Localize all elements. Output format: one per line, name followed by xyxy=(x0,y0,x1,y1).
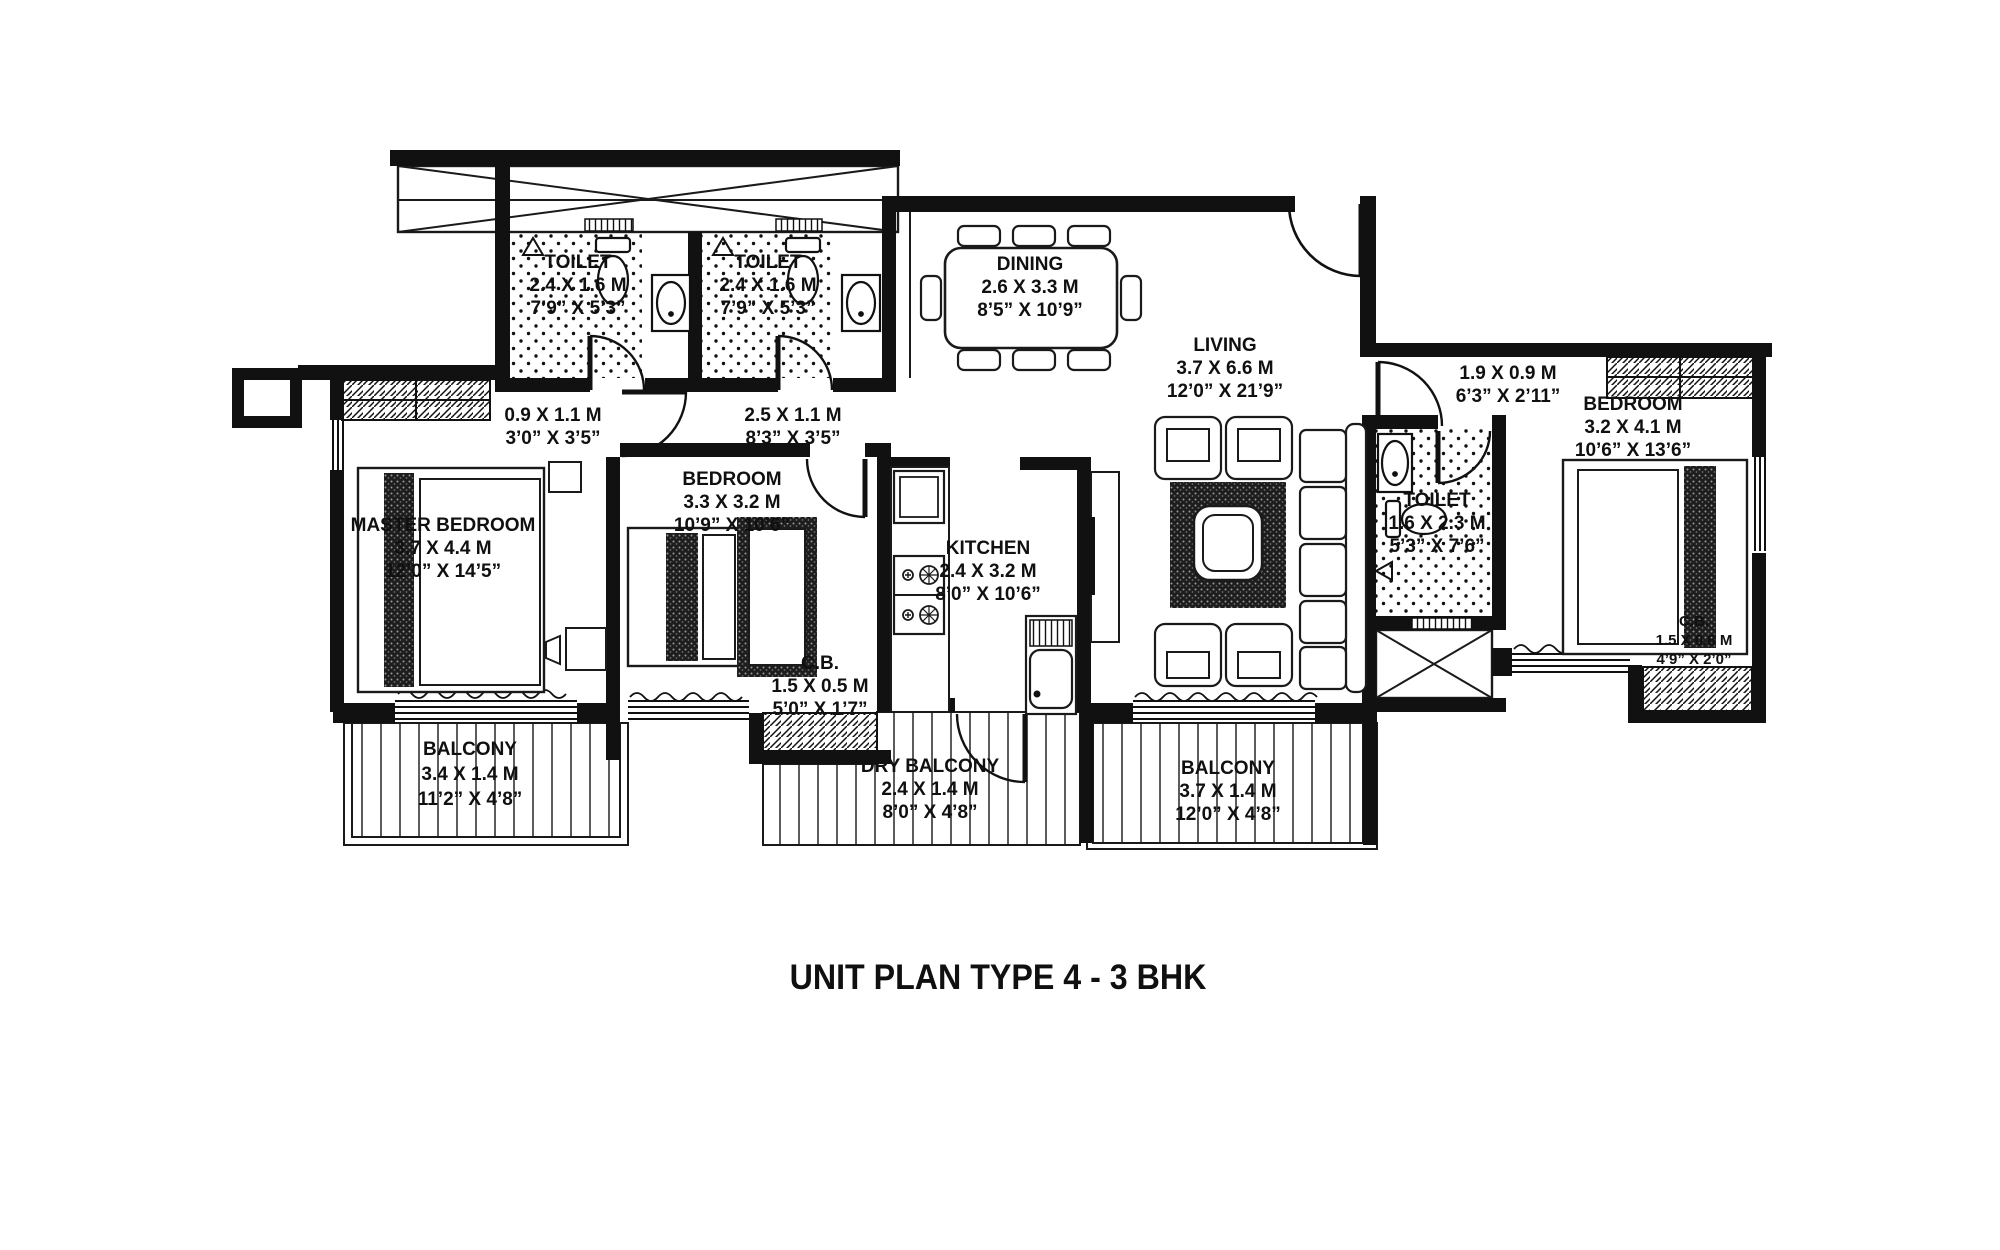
plan-title: UNIT PLAN TYPE 4 - 3 BHK xyxy=(790,958,1207,998)
room-name: BEDROOM xyxy=(674,468,790,491)
room-dim-imperial: 12’0” X 21’9” xyxy=(1167,380,1283,403)
room-dim-imperial: 8’0” X 4’8” xyxy=(861,801,999,824)
window-bedroom3-right xyxy=(1755,457,1765,551)
room-label-cb-2: C.B. 1.5 X 0.6 M 4’9” X 2’0” xyxy=(1656,612,1733,669)
room-dim-metric: 3.7 X 1.4 M xyxy=(1175,780,1281,803)
room-dim-imperial: 10’9” X 10’6” xyxy=(674,514,790,537)
room-dim-imperial: 7’9” X 5’3” xyxy=(529,297,626,320)
room-label-bedroom-2: BEDROOM 3.3 X 3.2 M 10’9” X 10’6” xyxy=(674,468,790,537)
room-name: LIVING xyxy=(1167,334,1283,357)
tv-unit xyxy=(1087,472,1119,642)
master-desk xyxy=(546,628,606,670)
room-label-living: LIVING 3.7 X 6.6 M 12’0” X 21’9” xyxy=(1167,334,1283,403)
armchair-2 xyxy=(1226,417,1292,479)
bedroom2-bed xyxy=(628,528,740,666)
top-duct-shaft xyxy=(398,166,898,232)
room-label-bedroom-3: BEDROOM 3.2 X 4.1 M 10’6” X 13’6” xyxy=(1575,393,1691,462)
sliding-window-bedroom2 xyxy=(628,701,749,719)
room-name: C.B. xyxy=(771,652,868,675)
sofa xyxy=(1300,424,1366,692)
room-name: TOILET xyxy=(1388,489,1485,512)
sliding-window-bedroom3 xyxy=(1512,654,1630,672)
room-label-dining: DINING 2.6 X 3.3 M 8’5” X 10’9” xyxy=(977,253,1083,322)
room-dim-imperial: 12’0” X 4’8” xyxy=(1175,803,1281,826)
room-dim-metric: 2.4 X 1.6 M xyxy=(529,274,626,297)
vent-grille-toilet1 xyxy=(585,219,633,231)
room-label-balcony-2: BALCONY 3.7 X 1.4 M 12’0” X 4’8” xyxy=(1175,757,1281,826)
room-dim-metric: 2.5 X 1.1 M xyxy=(744,404,841,427)
room-dim-metric: 1.9 X 0.9 M xyxy=(1456,362,1561,385)
washbasin-icon-toilet3 xyxy=(1378,434,1412,492)
room-dim-metric: 3.2 X 4.1 M xyxy=(1575,416,1691,439)
room-label-toilet-1: TOILET 2.4 X 1.6 M 7’9” X 5’3” xyxy=(529,251,626,320)
room-dim-metric: 2.4 X 1.6 M xyxy=(719,274,816,297)
room-name: BALCONY xyxy=(1175,757,1281,780)
room-name: DINING xyxy=(977,253,1083,276)
room-label-balcony-1: BALCONY 3.4 X 1.4 M 11’2” X 4’8” xyxy=(418,737,523,812)
room-dim-imperial: 3’0” X 3’5” xyxy=(504,427,601,450)
master-wardrobe xyxy=(342,380,490,420)
room-name: KITCHEN xyxy=(935,537,1041,560)
room-name: BEDROOM xyxy=(1575,393,1691,416)
room-dim-imperial: 8’0” X 10’6” xyxy=(935,583,1041,606)
armchair-3 xyxy=(1155,624,1221,686)
room-dim-imperial: 5’3” X 7’6” xyxy=(1388,535,1485,558)
sink xyxy=(1026,616,1076,714)
room-dim-metric: 3.7 X 4.4 M xyxy=(351,537,536,560)
room-dim-metric: 3.3 X 3.2 M xyxy=(674,491,790,514)
room-dim-metric: 2.4 X 3.2 M xyxy=(935,560,1041,583)
room-label-kitchen: KITCHEN 2.4 X 3.2 M 8’0” X 10’6” xyxy=(935,537,1041,606)
room-dim-metric: 0.9 X 1.1 M xyxy=(504,404,601,427)
armchair-1 xyxy=(1155,417,1221,479)
sliding-window-living xyxy=(1133,701,1315,719)
room-dim-metric: 1.6 X 2.3 M xyxy=(1388,512,1485,535)
room-dim-imperial: 8’3” X 3’5” xyxy=(744,427,841,450)
room-name: DRY BALCONY xyxy=(861,755,999,778)
room-dim-imperial: 7’9” X 5’3” xyxy=(719,297,816,320)
side-shaft-cross xyxy=(1376,630,1492,698)
room-label-dry-balcony: DRY BALCONY 2.4 X 1.4 M 8’0” X 4’8” xyxy=(861,755,999,824)
washbasin-icon-toilet1 xyxy=(652,275,690,331)
vent-grille-toilet2 xyxy=(776,219,822,231)
room-label-toilet-3: TOILET 1.6 X 2.3 M 5’3” X 7’6” xyxy=(1388,489,1485,558)
room-dim-imperial: 11’2” X 4’8” xyxy=(418,787,523,812)
room-label-entry-passage: 1.9 X 0.9 M 6’3” X 2’11” xyxy=(1456,362,1561,408)
room-dim-imperial: 4’9” X 2’0” xyxy=(1656,650,1733,669)
vent-grille-toilet3 xyxy=(1412,618,1472,629)
room-dim-imperial: 10’6” X 13’6” xyxy=(1575,439,1691,462)
room-dim-metric: 2.4 X 1.4 M xyxy=(861,778,999,801)
fridge xyxy=(894,471,944,523)
left-ledge xyxy=(232,368,302,428)
room-dim-metric: 3.4 X 1.4 M xyxy=(418,762,523,787)
room-label-lobby: 2.5 X 1.1 M 8’3” X 3’5” xyxy=(744,404,841,450)
room-dim-imperial: 5’0” X 1’7” xyxy=(771,698,868,721)
door-entrance xyxy=(1289,204,1361,276)
room-dim-imperial: 6’3” X 2’11” xyxy=(1456,385,1561,408)
window-master-left xyxy=(333,420,343,470)
sliding-window-master xyxy=(395,701,577,719)
room-label-lobby-small: 0.9 X 1.1 M 3’0” X 3’5” xyxy=(504,404,601,450)
floor-plan-page: TOILET 2.4 X 1.6 M 7’9” X 5’3” TOILET 2.… xyxy=(0,0,2000,1250)
room-dim-metric: 1.5 X 0.5 M xyxy=(771,675,868,698)
cupboard-hatch-2 xyxy=(1643,667,1752,711)
room-label-master-bedroom: MASTER BEDROOM 3.7 X 4.4 M 12’0” X 14’5” xyxy=(351,514,536,583)
room-name: TOILET xyxy=(529,251,626,274)
washbasin-icon-toilet2 xyxy=(842,275,880,331)
room-name: TOILET xyxy=(719,251,816,274)
bedroom3-wardrobe xyxy=(1607,357,1753,398)
room-name: BALCONY xyxy=(418,737,523,762)
door-bedroom2 xyxy=(807,459,865,517)
room-dim-imperial: 8’5” X 10’9” xyxy=(977,299,1083,322)
room-name: C.B. xyxy=(1656,612,1733,631)
room-dim-imperial: 12’0” X 14’5” xyxy=(351,560,536,583)
armchair-4 xyxy=(1226,624,1292,686)
room-label-toilet-2: TOILET 2.4 X 1.6 M 7’9” X 5’3” xyxy=(719,251,816,320)
rug-coffee-table xyxy=(1170,482,1286,608)
room-name: MASTER BEDROOM xyxy=(351,514,536,537)
room-dim-metric: 3.7 X 6.6 M xyxy=(1167,357,1283,380)
room-dim-metric: 1.5 X 0.6 M xyxy=(1656,631,1733,650)
room-dim-metric: 2.6 X 3.3 M xyxy=(977,276,1083,299)
room-label-cb-1: C.B. 1.5 X 0.5 M 5’0” X 1’7” xyxy=(771,652,868,721)
